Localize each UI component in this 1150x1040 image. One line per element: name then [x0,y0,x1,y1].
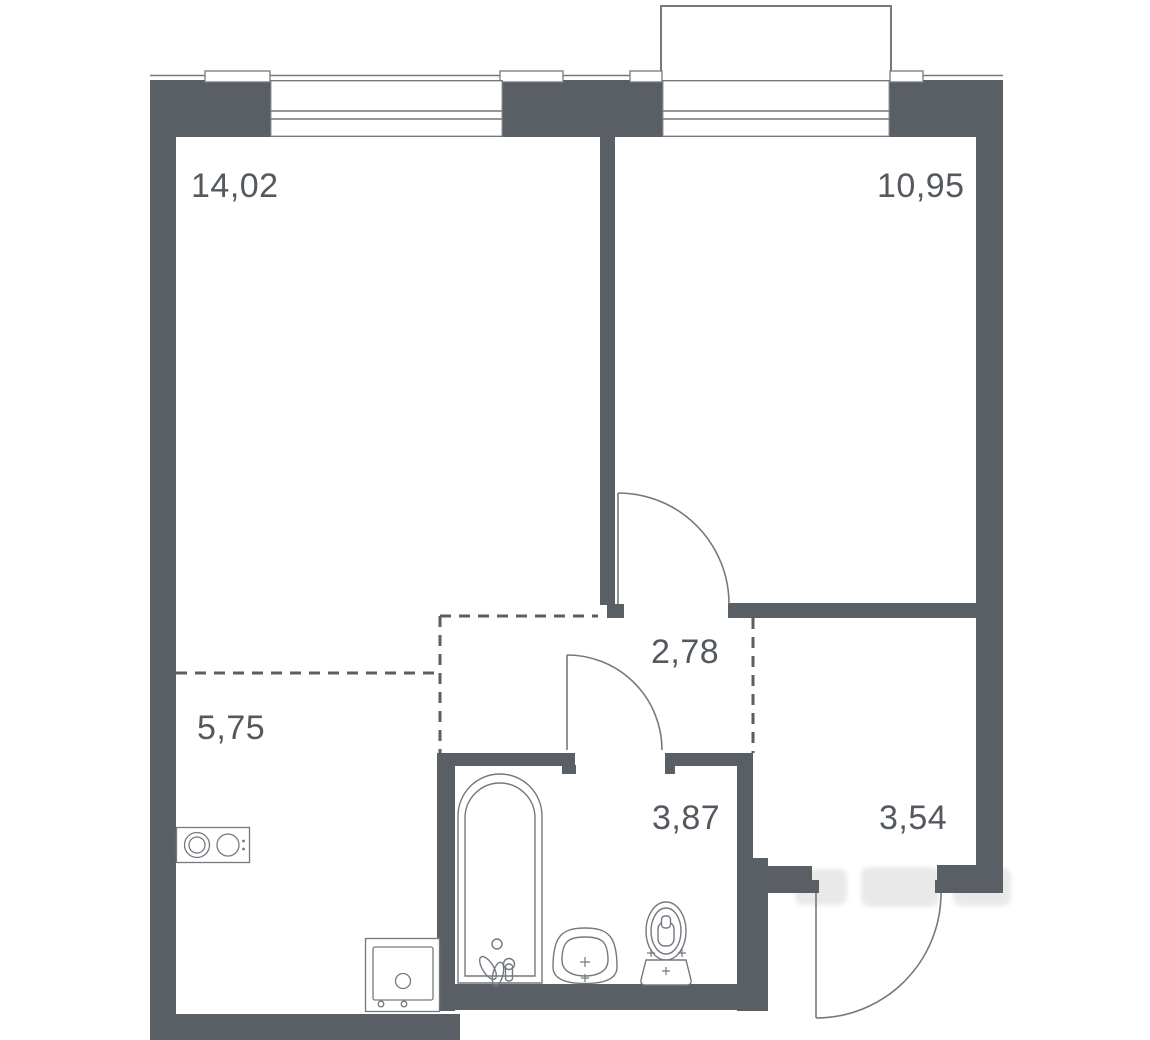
area-label-entry: 3,54 [879,800,947,836]
sink [553,928,617,984]
wall-entry-jamb-left [808,880,819,893]
area-label-bedroom: 10,95 [877,168,965,204]
stove [177,828,250,863]
wall-left [150,80,176,1040]
washing-machine [366,939,440,1012]
wall-entry-stub-left [768,866,812,893]
window-bedroom [662,80,890,137]
wall-bathroom-bottom [437,984,768,1010]
wall-entry-jamb-right [935,880,946,893]
area-label-kitchen: 5,75 [197,710,265,746]
wall-entry-stub-right [937,865,1003,893]
toilet [641,902,691,985]
wall-bathroom-right-upper [737,753,753,863]
wall-bathroom-door-jamb-right [665,765,675,774]
lip-4 [890,71,923,82]
door-entry [816,893,941,1018]
area-label-hallway: 2,78 [651,634,719,670]
floorplan-canvas: 14,02 10,95 2,78 5,75 3,87 3,54 [0,0,1150,1040]
door-bedroom [618,493,729,604]
bathtub [458,774,542,987]
lip-1 [205,71,270,82]
wall-right [976,80,1003,893]
wall-bottom [150,1014,460,1040]
wall-bathroom-top-left [437,753,575,766]
wall-divider-living-bedroom [600,137,615,605]
walls [150,80,1003,1040]
wall-top-left [150,80,270,137]
wall-bathroom-door-jamb-left [562,765,576,774]
wall-divider-jamb [607,604,624,618]
lip-2 [500,71,563,82]
wall-top-middle [503,80,662,137]
area-label-living-room: 14,02 [191,168,279,204]
floor-plan-drawing [0,0,1150,1040]
wall-bedroom-bottom [728,603,976,618]
door-bathroom [567,655,662,750]
area-label-bathroom: 3,87 [652,800,720,836]
window-living-room [270,80,503,137]
lip-3 [630,71,662,82]
